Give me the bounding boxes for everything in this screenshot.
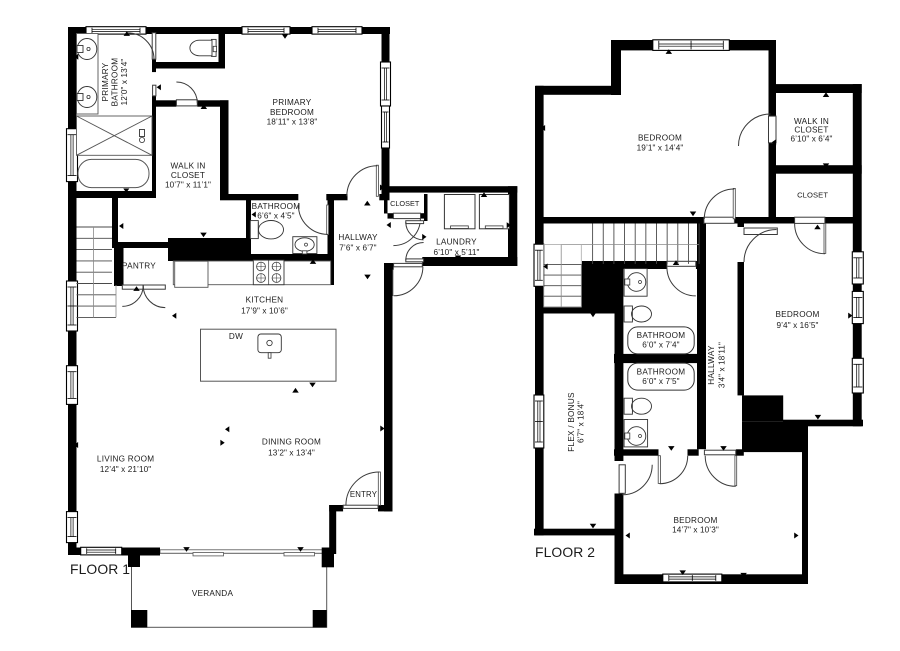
svg-text:BATHROOM: BATHROOM (111, 58, 120, 107)
svg-text:HALLWAY: HALLWAY (707, 345, 716, 385)
svg-text:CLOSET: CLOSET (794, 126, 828, 135)
svg-text:BEDROOM: BEDROOM (270, 108, 314, 117)
svg-text:VERANDA: VERANDA (192, 589, 234, 598)
svg-text:12’4" x 21’10": 12’4" x 21’10" (100, 465, 151, 474)
svg-text:WALK IN: WALK IN (170, 162, 205, 171)
svg-text:DW: DW (229, 332, 243, 341)
svg-text:3’4" x 18’11": 3’4" x 18’11" (718, 342, 727, 388)
svg-text:10’7" x 11’1": 10’7" x 11’1" (165, 181, 211, 190)
svg-text:19’1" x 14’4": 19’1" x 14’4" (637, 144, 684, 153)
svg-text:CLOSET: CLOSET (171, 171, 205, 180)
svg-text:FLEX / BONUS: FLEX / BONUS (567, 392, 576, 452)
svg-text:6’10" x 6’4": 6’10" x 6’4" (790, 134, 832, 143)
svg-text:PRIMARY: PRIMARY (101, 62, 110, 101)
svg-text:FLOOR 2: FLOOR 2 (535, 544, 595, 560)
svg-text:14’7" x 10’3": 14’7" x 10’3" (672, 525, 719, 534)
svg-text:BEDROOM: BEDROOM (775, 310, 819, 319)
svg-text:6’0" x 7’4": 6’0" x 7’4" (642, 340, 679, 349)
svg-text:DINING ROOM: DINING ROOM (262, 437, 321, 446)
svg-text:BATHROOM: BATHROOM (637, 331, 686, 340)
svg-text:BEDROOM: BEDROOM (673, 516, 717, 525)
svg-text:LAUNDRY: LAUNDRY (436, 238, 477, 247)
svg-text:9’4" x 16’5": 9’4" x 16’5" (776, 321, 818, 330)
svg-text:12’0" x 13’4": 12’0" x 13’4" (120, 59, 129, 106)
svg-text:PANTRY: PANTRY (122, 262, 156, 271)
svg-text:CLOSET: CLOSET (797, 190, 828, 199)
svg-text:FLOOR 1: FLOOR 1 (70, 561, 130, 577)
svg-text:6’10" x 5’11": 6’10" x 5’11" (433, 248, 479, 257)
svg-text:6’0" x 7’5": 6’0" x 7’5" (642, 377, 679, 386)
svg-text:6’6" x 4’5": 6’6" x 4’5" (257, 212, 294, 221)
svg-text:HALLWAY: HALLWAY (338, 233, 378, 242)
svg-text:LIVING ROOM: LIVING ROOM (97, 455, 154, 464)
svg-text:WALK IN: WALK IN (794, 117, 829, 126)
svg-text:ENTRY: ENTRY (350, 490, 378, 499)
svg-text:CLOSET: CLOSET (390, 199, 420, 208)
svg-text:KITCHEN: KITCHEN (246, 296, 284, 305)
svg-text:6’7" x 18’4": 6’7" x 18’4" (577, 401, 586, 443)
svg-text:18’11" x 13’8": 18’11" x 13’8" (267, 118, 318, 127)
svg-text:PRIMARY: PRIMARY (273, 98, 312, 107)
svg-text:BEDROOM: BEDROOM (638, 134, 682, 143)
svg-text:BATHROOM: BATHROOM (637, 368, 686, 377)
svg-text:7’6" x 6’7": 7’6" x 6’7" (339, 243, 376, 252)
svg-text:17’9" x 10’6": 17’9" x 10’6" (241, 307, 288, 316)
svg-text:BATHROOM: BATHROOM (252, 202, 301, 211)
svg-text:13’2" x 13’4": 13’2" x 13’4" (268, 448, 315, 457)
